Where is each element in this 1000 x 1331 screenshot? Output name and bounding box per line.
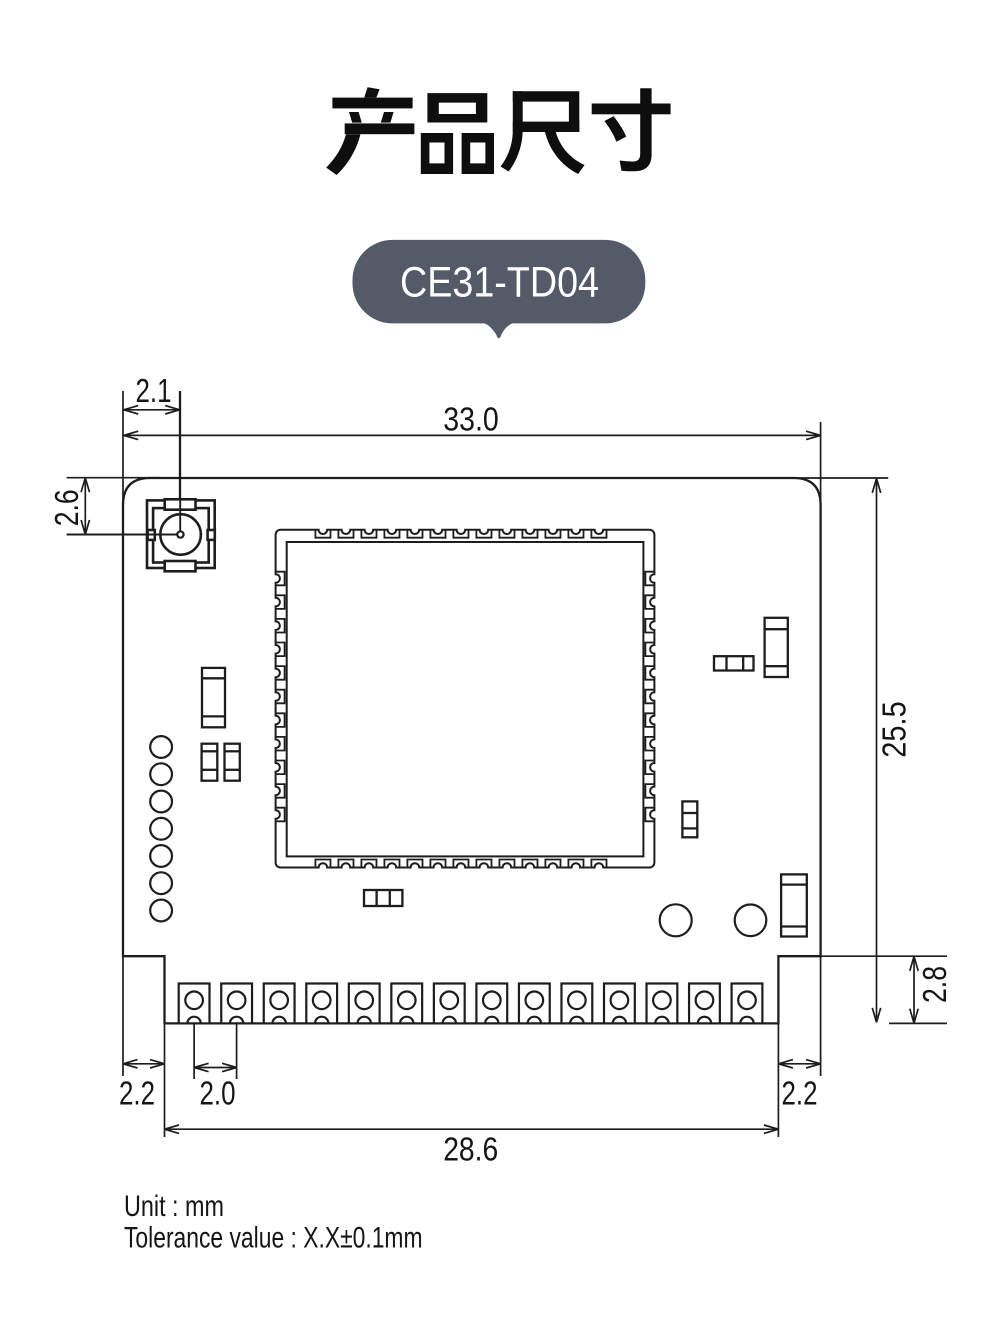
svg-text:2.1: 2.1 <box>136 372 172 409</box>
svg-text:2.2: 2.2 <box>119 1075 155 1112</box>
svg-text:28.6: 28.6 <box>443 1131 498 1168</box>
svg-text:33.0: 33.0 <box>443 401 499 438</box>
svg-text:Unit : mm: Unit : mm <box>124 1190 224 1223</box>
svg-text:2.0: 2.0 <box>200 1075 236 1112</box>
svg-text:2.8: 2.8 <box>916 966 953 1003</box>
svg-text:CE31-TD04: CE31-TD04 <box>400 259 599 307</box>
svg-text:2.2: 2.2 <box>782 1075 818 1112</box>
svg-text:2.6: 2.6 <box>48 489 85 526</box>
svg-text:Tolerance value : X.X±0.1mm: Tolerance value : X.X±0.1mm <box>124 1222 423 1255</box>
svg-text:25.5: 25.5 <box>876 701 913 758</box>
